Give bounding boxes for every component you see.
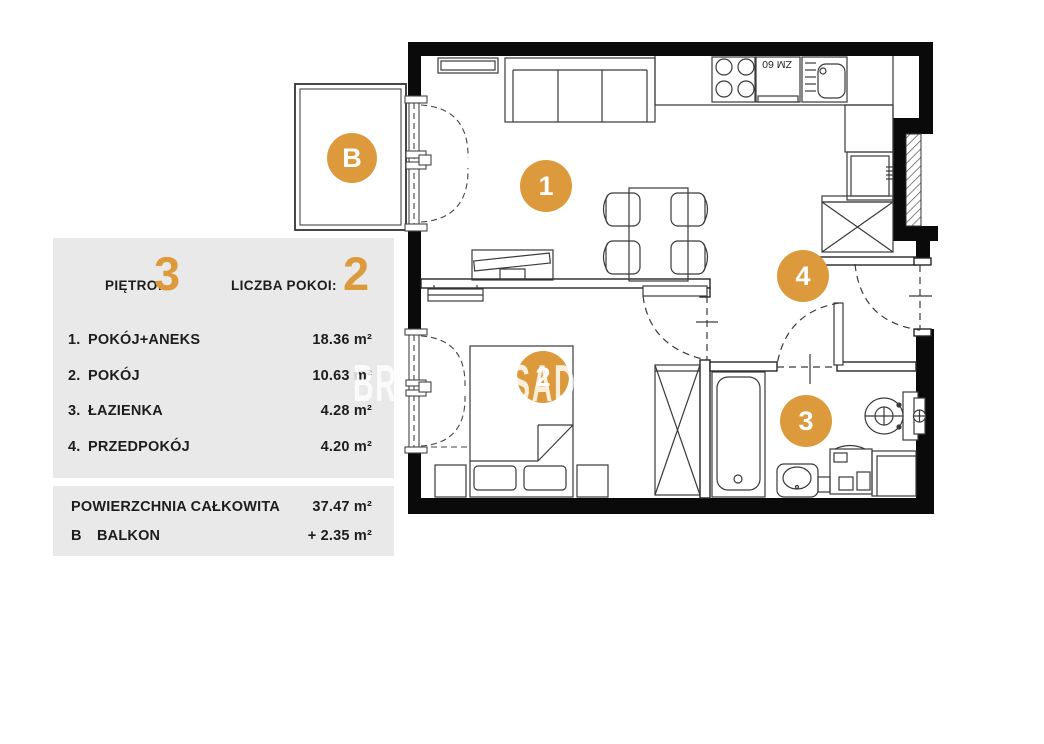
marker-label: 3 bbox=[798, 406, 813, 437]
shaft-hatch bbox=[906, 134, 921, 226]
dining-table bbox=[604, 188, 708, 281]
bedroom-door bbox=[643, 286, 718, 360]
floorplan-page: ZM 60 bbox=[0, 0, 1044, 744]
bathtub bbox=[712, 372, 765, 497]
bedroom-wardrobe bbox=[655, 365, 700, 495]
room-number: 1. bbox=[68, 332, 88, 348]
summary-prefix: B bbox=[71, 528, 97, 544]
rooms-count-value: 2 bbox=[343, 250, 369, 297]
kitchen-counter bbox=[845, 105, 893, 152]
fridge bbox=[847, 152, 893, 200]
room-number: 2. bbox=[68, 368, 88, 384]
marker-room-4: 4 bbox=[777, 250, 829, 302]
marker-label: 2 bbox=[535, 362, 550, 393]
balcony-door bbox=[405, 96, 468, 231]
kitchen-sink bbox=[802, 57, 847, 102]
bath-cabinet bbox=[872, 451, 916, 496]
nightstand-right bbox=[577, 465, 608, 497]
summary-row: POWIERZCHNIA CAŁKOWITA 37.47 m² bbox=[53, 492, 394, 521]
washbasin bbox=[777, 464, 818, 497]
room-name: POKÓJ+ANEKS bbox=[88, 332, 200, 348]
summary-area: 37.47 m² bbox=[312, 499, 372, 515]
dishwasher: ZM 60 bbox=[756, 57, 800, 102]
info-panel: PIĘTRO: 3 LICZBA POKOI: 2 1. POKÓJ+ANEKS… bbox=[53, 238, 394, 478]
room-row: 3. ŁAZIENKA 4.28 m² bbox=[53, 393, 394, 429]
room-row: 1. POKÓJ+ANEKS 18.36 m² bbox=[53, 322, 394, 358]
summary-area: + 2.35 m² bbox=[308, 528, 372, 544]
tv-cabinet bbox=[472, 250, 553, 280]
toilet bbox=[865, 392, 926, 440]
summary-list: POWIERZCHNIA CAŁKOWITA 37.47 m² B BALKON… bbox=[53, 492, 394, 550]
room-list: 1. POKÓJ+ANEKS 18.36 m² 2. POKÓJ 10.63 m… bbox=[53, 322, 394, 465]
room-name: ŁAZIENKA bbox=[88, 403, 163, 419]
room-row: 2. POKÓJ 10.63 m² bbox=[53, 358, 394, 394]
dishwasher-label: ZM 60 bbox=[762, 58, 792, 70]
summary-name: BALKON bbox=[97, 528, 160, 544]
marker-label: B bbox=[342, 143, 362, 174]
room-number: 3. bbox=[68, 403, 88, 419]
nightstand-left bbox=[435, 465, 466, 497]
summary-row: B BALKON + 2.35 m² bbox=[53, 521, 394, 550]
room-name: PRZEDPOKÓJ bbox=[88, 439, 190, 455]
washing-machine bbox=[818, 446, 872, 495]
room-area: 4.28 m² bbox=[321, 403, 372, 419]
bathroom-door bbox=[777, 303, 843, 384]
room-area: 4.20 m² bbox=[321, 439, 372, 455]
room-name: POKÓJ bbox=[88, 368, 140, 384]
wall-shelf bbox=[438, 58, 498, 73]
sofa bbox=[505, 58, 655, 122]
summary-name: POWIERZCHNIA CAŁKOWITA bbox=[71, 499, 280, 515]
marker-label: 1 bbox=[538, 171, 553, 202]
summary-panel: POWIERZCHNIA CAŁKOWITA 37.47 m² B BALKON… bbox=[53, 486, 394, 556]
room-row: 4. PRZEDPOKÓJ 4.20 m² bbox=[53, 429, 394, 465]
entrance-door bbox=[855, 264, 932, 330]
room-area: 18.36 m² bbox=[312, 332, 372, 348]
marker-room-3: 3 bbox=[780, 395, 832, 447]
marker-label: 4 bbox=[795, 261, 810, 292]
room-area: 10.63 m² bbox=[312, 368, 372, 384]
kitchen: ZM 60 bbox=[655, 56, 893, 252]
marker-room-2: 2 bbox=[517, 351, 569, 403]
hallway-wardrobe bbox=[822, 196, 893, 252]
marker-room-1: 1 bbox=[520, 160, 572, 212]
bedroom-window bbox=[405, 329, 468, 453]
panel-header: PIĘTRO: 3 LICZBA POKOI: 2 bbox=[53, 238, 394, 322]
marker-balcony: B bbox=[327, 133, 377, 183]
floor-value: 3 bbox=[154, 250, 180, 297]
room-number: 4. bbox=[68, 439, 88, 455]
stove bbox=[712, 57, 755, 102]
rooms-count-label: LICZBA POKOI: bbox=[231, 278, 337, 293]
